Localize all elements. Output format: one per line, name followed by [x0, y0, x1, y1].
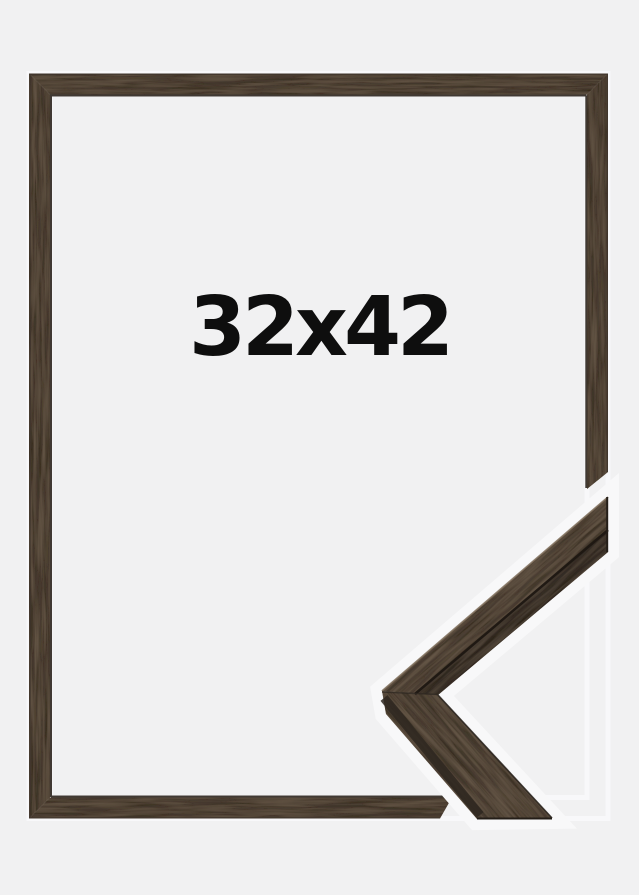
frame-inner-glow — [50, 95, 587, 798]
frame-outer-glow — [29, 74, 608, 819]
frame-product-image: 32x42 — [0, 0, 639, 895]
frame-inner-lip-line — [50, 95, 587, 797]
frame-graphic — [0, 0, 639, 895]
frame-left-bar-grain — [27, 70, 53, 822]
frame-outer-edge-line — [29, 74, 608, 819]
size-label: 32x42 — [0, 287, 639, 369]
corner-sample-face-side-edge — [415, 530, 608, 694]
